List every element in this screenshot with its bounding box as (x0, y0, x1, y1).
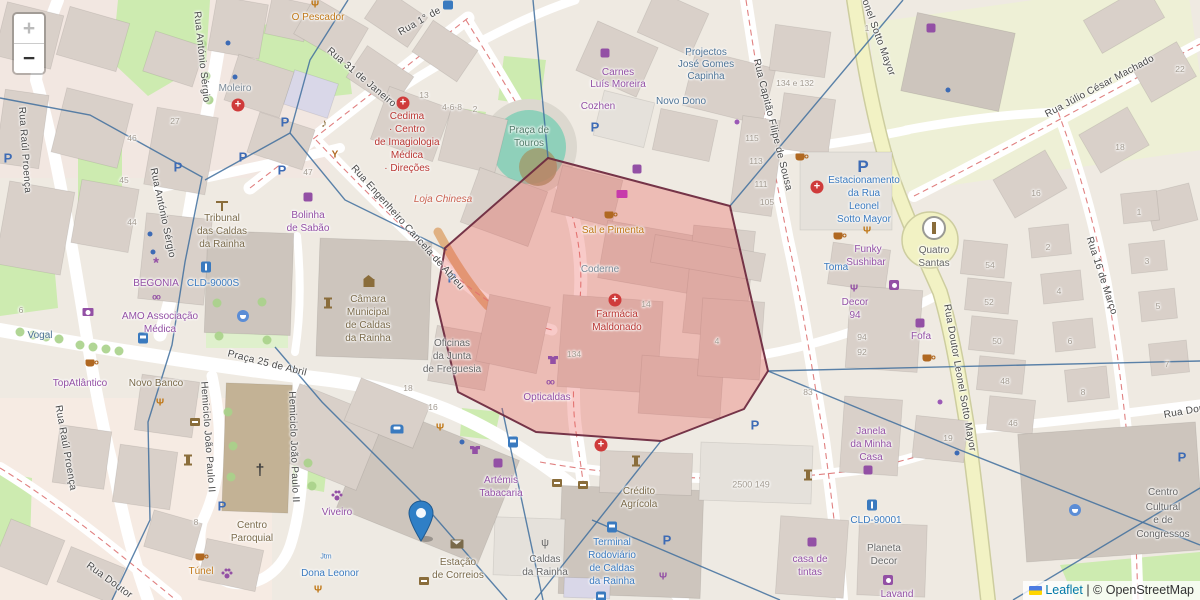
poi-label: Lavand (881, 590, 914, 600)
poi-label: Rodoviário (588, 551, 636, 561)
attribution-bar: Leaflet | © OpenStreetMap (1023, 581, 1200, 600)
p-icon: P (278, 163, 287, 178)
poi-label: Praça de (509, 126, 549, 136)
poi-label: Fofa (911, 332, 931, 342)
housenumber-label: 7 (1165, 360, 1170, 369)
dotb-icon (226, 41, 231, 46)
poi-label: das Caldas (197, 227, 247, 237)
housenumber-label: 5 (1156, 302, 1161, 311)
dotp-icon (735, 120, 740, 125)
street-label: Rua Dout (1163, 403, 1200, 421)
poi-label: Centro (1148, 488, 1178, 498)
forkp-icon: Ψ (850, 284, 858, 295)
poi-label: Crédito (623, 487, 655, 497)
housenumber-label: 46 (127, 134, 136, 143)
p-icon: P (281, 115, 290, 130)
poi-label: Novo Dono (656, 97, 706, 107)
poi-label: Congressos (1136, 530, 1189, 540)
street-label: Rua Raúl Proença (16, 106, 32, 193)
poi-label: Câmara (350, 295, 386, 305)
zoom-control: + − (12, 12, 46, 75)
street-label: Rua Doutor Leonel Sotto Mayor (941, 304, 977, 453)
poi-label: Touros (514, 139, 544, 149)
poi-label: Janela (856, 427, 885, 437)
poi-label: Quatro (919, 246, 950, 256)
poi-label: Novo Banco (129, 379, 183, 389)
column-icon (806, 470, 810, 481)
poi-label: Artémis (484, 476, 518, 486)
poi-label: Santas (918, 259, 949, 269)
poi-label: Luís Moreira (590, 80, 646, 90)
bus-icon (508, 437, 518, 448)
housenumber-label: 18 (403, 384, 412, 393)
housenumber-label: 4·6·8 (442, 103, 462, 112)
housenumber-label: 18 (1115, 143, 1124, 152)
poi-label: Sal e Pimenta (582, 226, 644, 236)
housenumber-label: 1 (865, 24, 870, 33)
med-icon: + (397, 97, 410, 110)
street-label: Rua 16 de Março (1084, 236, 1119, 316)
poi-label: de Freguesia (423, 365, 481, 375)
poi-label: Cozhen (581, 102, 615, 112)
housenumber-label: 115 (745, 134, 759, 143)
p-icon: P (591, 120, 600, 135)
poi-label: Maldonado (592, 323, 641, 333)
poi-label: CLD-90001 (850, 516, 901, 526)
taxi-icon (391, 425, 404, 434)
poi-label: casa de (792, 555, 827, 565)
poi-label: de Sabão (287, 224, 330, 234)
poi-label: Viveiro (322, 508, 352, 518)
bus-icon (607, 522, 617, 533)
attribution-separator: | © (1083, 583, 1106, 597)
cafe-icon (923, 355, 932, 362)
poi-label: BEGONIA (133, 279, 179, 289)
fountain-icon (237, 310, 249, 322)
housenumber-label: 83 (803, 388, 812, 397)
marker-pin-icon (409, 501, 433, 541)
cafe-icon (834, 233, 843, 240)
housenumber-label: 2 (1046, 243, 1051, 252)
sqp-icon (916, 319, 925, 328)
poi-label: Centro (237, 521, 267, 531)
sqp-icon (601, 49, 610, 58)
forkp-icon: Ψ (659, 572, 667, 583)
housenumber-label: 4 (1057, 287, 1062, 296)
poi-label: da Rainha (589, 577, 635, 587)
p-icon: P (218, 499, 227, 514)
ukraine-flag-icon (1029, 586, 1042, 595)
housenumber-label: 2500 149 (732, 481, 770, 490)
housenumber-label: 13 (419, 91, 428, 100)
sqp-icon (633, 165, 642, 174)
camera-icon (83, 308, 94, 316)
sqp-icon (864, 466, 873, 475)
sqb-icon (443, 1, 453, 10)
fork-icon: Ψ (863, 226, 871, 237)
dotb-icon (151, 250, 156, 255)
poi-label: e de (1153, 516, 1172, 526)
housenumber-label: 16 (428, 403, 437, 412)
poi-label: Municipal (347, 308, 389, 318)
poi-label: CLD-9000S (187, 279, 239, 289)
housenumber-label: 46 (1008, 419, 1017, 428)
housenumber-label: 6 (1068, 337, 1073, 346)
townhall-icon (364, 279, 375, 287)
sqp-icon (494, 459, 503, 468)
poi-label: da Rua (848, 189, 880, 199)
housenumber-label: 111 (755, 180, 768, 189)
charge-icon (201, 262, 211, 273)
paw-icon (225, 574, 230, 579)
cross-icon: † (256, 462, 265, 480)
poi-label: Farmácia (596, 310, 638, 320)
p-icon: P (751, 418, 760, 433)
fork-icon: Ψ (311, 0, 319, 11)
cafe-icon (86, 360, 95, 367)
poi-label: Decor (842, 298, 869, 308)
housenumber-label: 45 (119, 176, 128, 185)
housenumber-label: 105 (760, 198, 774, 207)
poi-label: Túnel (188, 567, 213, 577)
poi-label: Jtm (320, 554, 331, 561)
poi-label: Médica (391, 151, 423, 161)
housenumber-label: 50 (992, 337, 1001, 346)
sqp-icon (808, 538, 817, 547)
poi-label: da Minha (850, 440, 891, 450)
poi-label: Terminal (593, 538, 631, 548)
housenumber-label: 4 (715, 337, 720, 346)
poi-label: 94 (849, 311, 860, 321)
bank-icon (578, 481, 588, 489)
housenumber-label: 8 (194, 518, 199, 527)
bank-icon (552, 479, 562, 487)
housenumber-label: 134 (567, 350, 581, 359)
street-label: Rua Doutor (84, 561, 134, 600)
poi-label: Capinha (687, 72, 724, 82)
pbig-icon: P (857, 157, 868, 177)
map-marker[interactable] (408, 500, 434, 542)
poi-label: Oficinas (434, 339, 470, 349)
dotp-icon (938, 400, 943, 405)
housenumber-label: 113 (749, 157, 763, 166)
housenumber-label: 2 (473, 105, 478, 114)
p-icon: P (174, 160, 183, 175)
antenna-icon: ψ (541, 537, 549, 549)
leaflet-link[interactable]: Leaflet (1045, 583, 1083, 597)
poi-label: Carnes (602, 68, 634, 78)
poi-label: José Gomes (678, 60, 734, 70)
poi-label: Toma (824, 263, 848, 273)
med-icon: + (595, 439, 608, 452)
housenumber-label: 8 (1081, 388, 1086, 397)
poi-label: · Direções (384, 164, 430, 174)
poi-label: da Rainha (522, 568, 568, 578)
music-icon: ♪ (321, 116, 327, 130)
poi-label: Loja Chinesa (414, 195, 472, 205)
poi-label: Bolinha (291, 211, 324, 221)
street-label: Hemiciclo João Paulo II (286, 391, 300, 503)
poi-label: Moleiro (219, 84, 252, 94)
housenumber-label: 6 (19, 306, 24, 315)
paw-icon (335, 496, 340, 501)
poi-label: Dona Leonor (301, 569, 359, 579)
openstreetmap-credit[interactable]: OpenStreetMap (1106, 583, 1194, 597)
zoom-in-button[interactable]: + (14, 14, 44, 44)
poi-label: Decor (871, 557, 898, 567)
poi-label: Paroquial (231, 534, 273, 544)
street-label: Rua 31 de Janeiro (325, 46, 398, 109)
poi-label: Projectos (685, 48, 727, 58)
street-label: Rua Júlio César Machado (1044, 54, 1156, 120)
housenumber-label: 22 (1175, 65, 1184, 74)
dotb-icon (148, 232, 153, 237)
wash-icon (889, 280, 899, 290)
housenumber-label: 134 e 132 (776, 79, 814, 88)
p-icon: P (4, 151, 13, 166)
monument-icon (922, 216, 946, 240)
housenumber-label: 92 (857, 348, 866, 357)
housenumber-label: 48 (1000, 377, 1009, 386)
street-label: Hemiciclo João Paulo II (198, 381, 216, 493)
housenumber-label: 44 (127, 218, 136, 227)
poi-label: Tribunal (204, 214, 240, 224)
poi-label: Vogal (27, 331, 52, 341)
poi-label: · Centro (389, 125, 425, 135)
bank-icon (419, 577, 429, 585)
shirt-icon (470, 446, 480, 454)
poi-label: Médica (144, 325, 176, 335)
poi-label: AMO Associação (122, 312, 198, 322)
mail-icon (451, 540, 464, 549)
dotb-icon (955, 451, 960, 456)
column-icon (326, 298, 330, 309)
housenumber-label: 27 (170, 117, 179, 126)
poi-label: de Caldas (345, 321, 390, 331)
bank-icon (190, 418, 200, 426)
housenumber-label: 94 (857, 333, 866, 342)
cafe-icon (796, 154, 805, 161)
poi-label: Estacionamento (828, 176, 900, 186)
dotb-icon (460, 440, 465, 445)
poi-label: Cultural (1146, 503, 1180, 513)
street-label: Rua Leonel Sotto Mayor (848, 0, 897, 77)
med-icon: + (811, 181, 824, 194)
poi-label: Cedima (390, 112, 424, 122)
street-label: Rua Engenheiro Cancela de Abreu (348, 164, 465, 292)
poi-label: O Pescador (292, 13, 345, 23)
poi-label: da Rainha (199, 240, 245, 250)
poi-label: Sushibar (846, 258, 885, 268)
poi-label: Planeta (867, 544, 901, 554)
dotb-icon (233, 75, 238, 80)
flower-icon: * (153, 255, 159, 272)
poi-label: Agrícola (621, 500, 658, 510)
poi-label: da Rainha (345, 334, 391, 344)
housenumber-label: 1 (1137, 208, 1142, 217)
poi-label: Estação (440, 558, 476, 568)
glasses-icon: oo (152, 293, 160, 302)
p-icon: P (239, 150, 248, 165)
poi-label: Leonel (849, 202, 879, 212)
cafe-icon (605, 212, 614, 219)
column-icon (186, 455, 190, 466)
scales-icon (216, 201, 228, 203)
street-label: Rua 1° de (397, 6, 443, 38)
med-icon: + (232, 99, 245, 112)
street-label: Rua Raúl Proença (53, 405, 78, 492)
marker-dot (416, 508, 426, 518)
housenumber-label: 14 (641, 300, 650, 309)
poi-label: de Correios (432, 571, 484, 581)
poi-label: Coderne (581, 265, 619, 275)
fountain-icon (1069, 504, 1081, 516)
poi-label: TopAtlântico (53, 379, 107, 389)
poi-label: Opticaldas (523, 393, 570, 403)
glasses-icon: oo (546, 378, 554, 387)
poi-label: tintas (798, 568, 822, 578)
tv-icon (617, 190, 628, 198)
poi-label: Caldas (529, 555, 560, 565)
housenumber-label: 52 (984, 298, 993, 307)
med-icon: + (609, 294, 622, 307)
housenumber-label: 19 (943, 434, 952, 443)
poi-label: de Caldas (589, 564, 634, 574)
housenumber-label: 54 (985, 261, 994, 270)
sqp-icon (927, 24, 936, 33)
poi-label: Casa (859, 453, 882, 463)
housenumber-label: 16 (1031, 189, 1040, 198)
cafe-icon (196, 554, 205, 561)
map-overlay: PPPPPPPPPPPP+++++Y♪ΨΨΨΨΨΨΨ†ψoooo*O Pesca… (0, 0, 1200, 600)
column-icon (634, 456, 638, 467)
p-icon: P (663, 533, 672, 548)
street-label: Rua António Sérgio (148, 167, 177, 259)
p-icon: P (1178, 450, 1187, 465)
wash-icon (883, 575, 893, 585)
bus-icon (596, 592, 606, 600)
charge-icon (867, 500, 877, 511)
fork-icon: Ψ (436, 423, 444, 434)
fork-icon: Ψ (156, 398, 164, 409)
poi-label: de Imagiologia (374, 138, 439, 148)
dotb-icon (946, 88, 951, 93)
zoom-out-button[interactable]: − (14, 44, 44, 73)
map-canvas[interactable]: PPPPPPPPPPPP+++++Y♪ΨΨΨΨΨΨΨ†ψoooo*O Pesca… (0, 0, 1200, 600)
poi-label: Funky (854, 245, 881, 255)
housenumber-label: 47 (303, 168, 312, 177)
poi-label: da Junta (433, 352, 471, 362)
housenumber-label: 3 (1145, 257, 1150, 266)
poi-label: Sotto Mayor (837, 215, 891, 225)
goblet-icon: Y (332, 150, 339, 161)
poi-label: Tabacaria (479, 489, 522, 499)
fork-icon: Ψ (314, 585, 322, 596)
sqp-icon (304, 193, 313, 202)
shirt-icon (548, 356, 558, 364)
street-label: Rua António Sérgio (191, 11, 211, 103)
street-label: Praça 25 de Abril (226, 349, 307, 378)
